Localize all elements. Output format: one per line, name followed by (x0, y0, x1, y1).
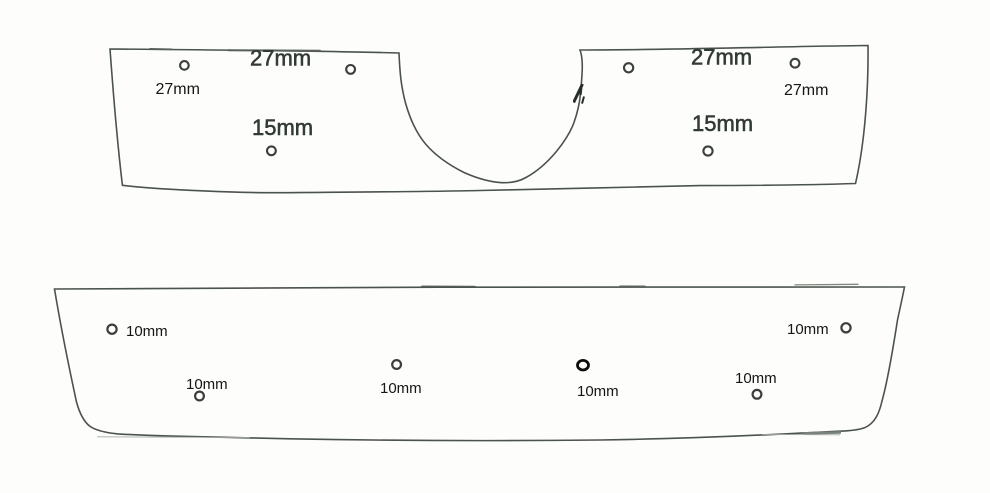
svg-text:10mm: 10mm (186, 376, 228, 393)
svg-text:15mm: 15mm (252, 115, 313, 140)
svg-text:27mm: 27mm (784, 82, 828, 99)
svg-text:10mm: 10mm (787, 321, 829, 338)
svg-text:10mm: 10mm (380, 380, 422, 397)
svg-text:27mm: 27mm (156, 81, 200, 98)
svg-text:27mm: 27mm (250, 46, 311, 71)
svg-text:15mm: 15mm (692, 111, 753, 136)
svg-text:10mm: 10mm (735, 370, 777, 387)
svg-text:10mm: 10mm (126, 323, 168, 340)
svg-text:27mm: 27mm (691, 45, 752, 70)
svg-text:10mm: 10mm (577, 383, 619, 400)
